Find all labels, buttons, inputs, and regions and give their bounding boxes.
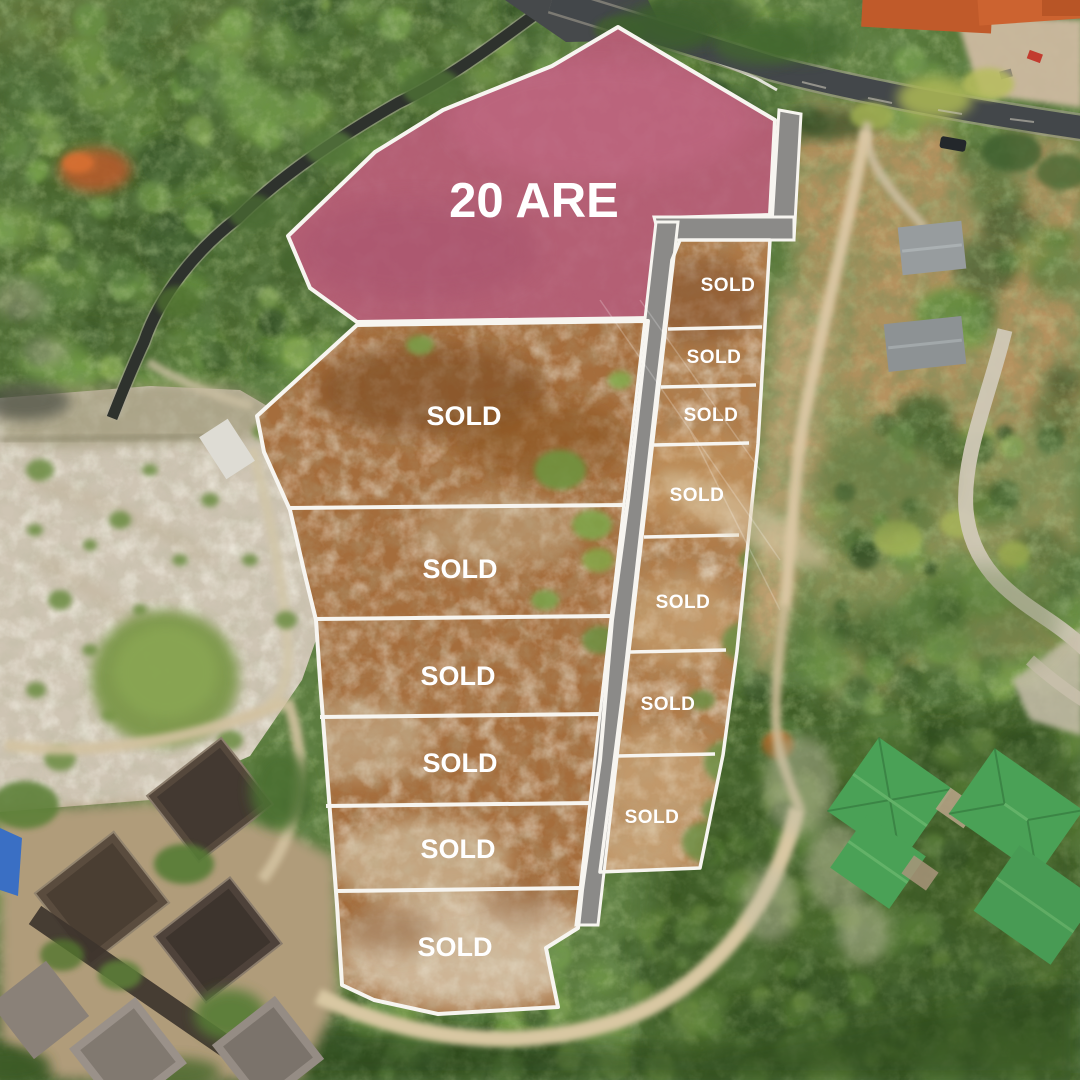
svg-text:SOLD: SOLD xyxy=(687,347,742,368)
svg-text:SOLD: SOLD xyxy=(420,661,495,691)
svg-text:SOLD: SOLD xyxy=(422,748,497,778)
svg-text:SOLD: SOLD xyxy=(701,275,756,296)
svg-text:SOLD: SOLD xyxy=(422,554,497,584)
svg-text:SOLD: SOLD xyxy=(684,405,739,426)
svg-text:SOLD: SOLD xyxy=(656,592,711,613)
svg-text:SOLD: SOLD xyxy=(625,807,680,828)
svg-text:SOLD: SOLD xyxy=(426,401,501,431)
svg-text:SOLD: SOLD xyxy=(641,694,696,715)
svg-text:20 ARE: 20 ARE xyxy=(449,174,619,228)
svg-text:SOLD: SOLD xyxy=(670,485,725,506)
svg-text:SOLD: SOLD xyxy=(420,834,495,864)
svg-text:SOLD: SOLD xyxy=(417,932,492,962)
